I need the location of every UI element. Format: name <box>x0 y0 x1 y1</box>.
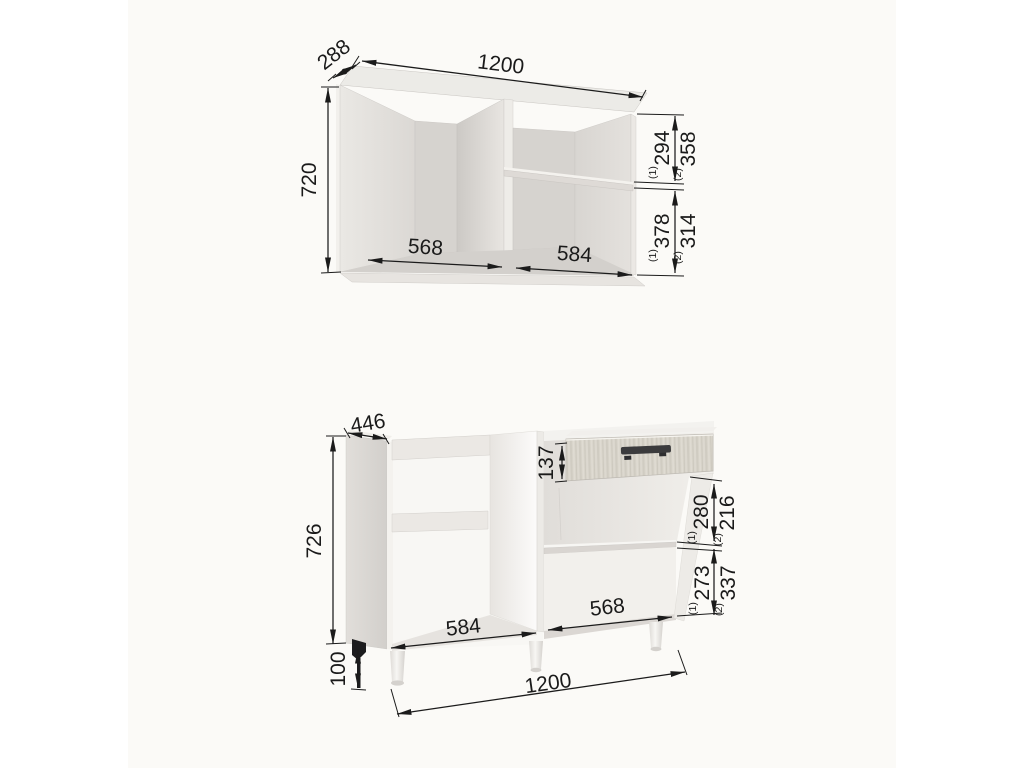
drawing-stage: 288 1200 720 568 <box>0 0 1024 768</box>
dim-wall-width-label: 1200 <box>476 50 525 79</box>
base-cabinet-middle-rail <box>392 511 488 532</box>
dim-base-height: 726 <box>303 436 346 644</box>
dim-wall-314-sup: (2) <box>672 251 684 264</box>
dim-wall-378-sup: (1) <box>647 249 659 262</box>
wall-cabinet-right-front-edge <box>631 114 636 275</box>
base-cabinet-drawing: 446 726 100 137 <box>303 409 740 717</box>
dim-base-left-opening-label: 584 <box>445 614 483 641</box>
wall-cabinet-divider-front-edge <box>504 99 513 268</box>
base-cabinet-left-panel <box>346 435 387 649</box>
dim-base-280-label: 280 <box>690 494 713 529</box>
dim-wall-height: 720 <box>298 87 341 273</box>
dim-wall-section-heights: (1) 294 (2) 358 (1) 378 (2) 314 <box>634 114 700 276</box>
dim-base-337-label: 337 <box>717 565 740 600</box>
cabinet-leg-right <box>649 622 663 651</box>
dim-wall-378-label: 378 <box>651 213 674 248</box>
extension-line <box>637 275 684 276</box>
cabinet-dimension-diagram: 288 1200 720 568 <box>0 0 1024 768</box>
dim-base-depth-label: 446 <box>349 409 387 437</box>
dim-wall-height-label: 720 <box>298 162 321 197</box>
leveling-foot <box>352 639 366 688</box>
base-cabinet-divider-side-face <box>490 431 537 631</box>
dim-base-280-sup: (1) <box>686 531 698 544</box>
dim-base-leg-height-label: 100 <box>327 651 350 686</box>
base-cabinet-left-panel-inner-edge <box>387 441 393 650</box>
wall-cabinet-left-front-edge <box>336 84 340 273</box>
dim-base-216-label: 216 <box>716 495 739 530</box>
wall-cabinet-divider-side-face <box>457 99 504 266</box>
wall-cabinet-drawing: 288 1200 720 568 <box>298 35 700 286</box>
dim-base-right-opening-label: 568 <box>589 594 626 621</box>
dim-drawer-height-label: 137 <box>535 445 558 480</box>
dim-base-273-label: 273 <box>691 565 714 600</box>
extension-line <box>678 650 687 675</box>
extension-line <box>321 272 341 273</box>
cabinet-leg-middle <box>529 641 543 672</box>
extension-line <box>351 689 366 690</box>
dim-base-273-sup: (1) <box>687 602 699 615</box>
extension-line <box>391 689 399 717</box>
dim-wall-right-opening-label: 584 <box>556 242 593 267</box>
dim-wall-314-label: 314 <box>677 213 700 248</box>
dim-base-337-sup: (2) <box>713 603 725 616</box>
extension-line <box>637 114 684 115</box>
extension-line <box>634 188 684 190</box>
dim-wall-294-label: 294 <box>651 130 674 165</box>
dim-base-height-label: 726 <box>303 523 326 558</box>
dim-wall-358-sup: (2) <box>672 168 684 181</box>
dim-base-216-sup: (2) <box>712 533 724 546</box>
dim-wall-358-label: 358 <box>677 131 700 166</box>
cabinet-leg-front-left <box>390 651 405 686</box>
dim-drawer-height: 137 <box>535 443 567 482</box>
dim-wall-left-opening-label: 568 <box>407 235 444 260</box>
dim-base-width-label: 1200 <box>523 669 572 698</box>
wall-cabinet-right-back-panel <box>513 128 575 250</box>
dim-wall-294-sup: (1) <box>647 166 659 179</box>
extension-line <box>326 643 346 644</box>
extension-line <box>634 182 684 184</box>
wall-cabinet-left-inner-wall <box>340 85 415 272</box>
